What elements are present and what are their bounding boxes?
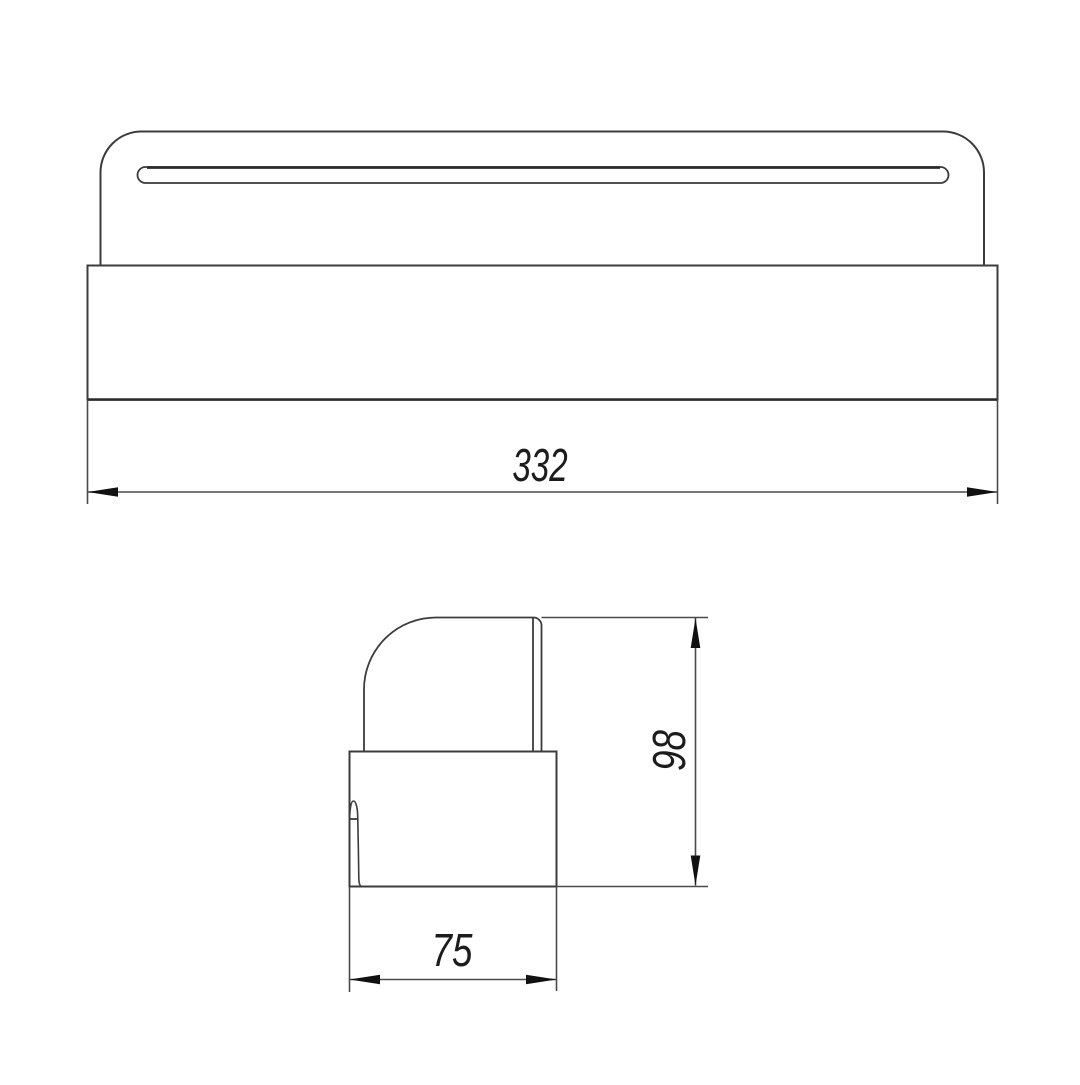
svg-text:75: 75: [432, 924, 474, 976]
svg-text:98: 98: [643, 730, 695, 771]
svg-text:332: 332: [512, 441, 567, 491]
